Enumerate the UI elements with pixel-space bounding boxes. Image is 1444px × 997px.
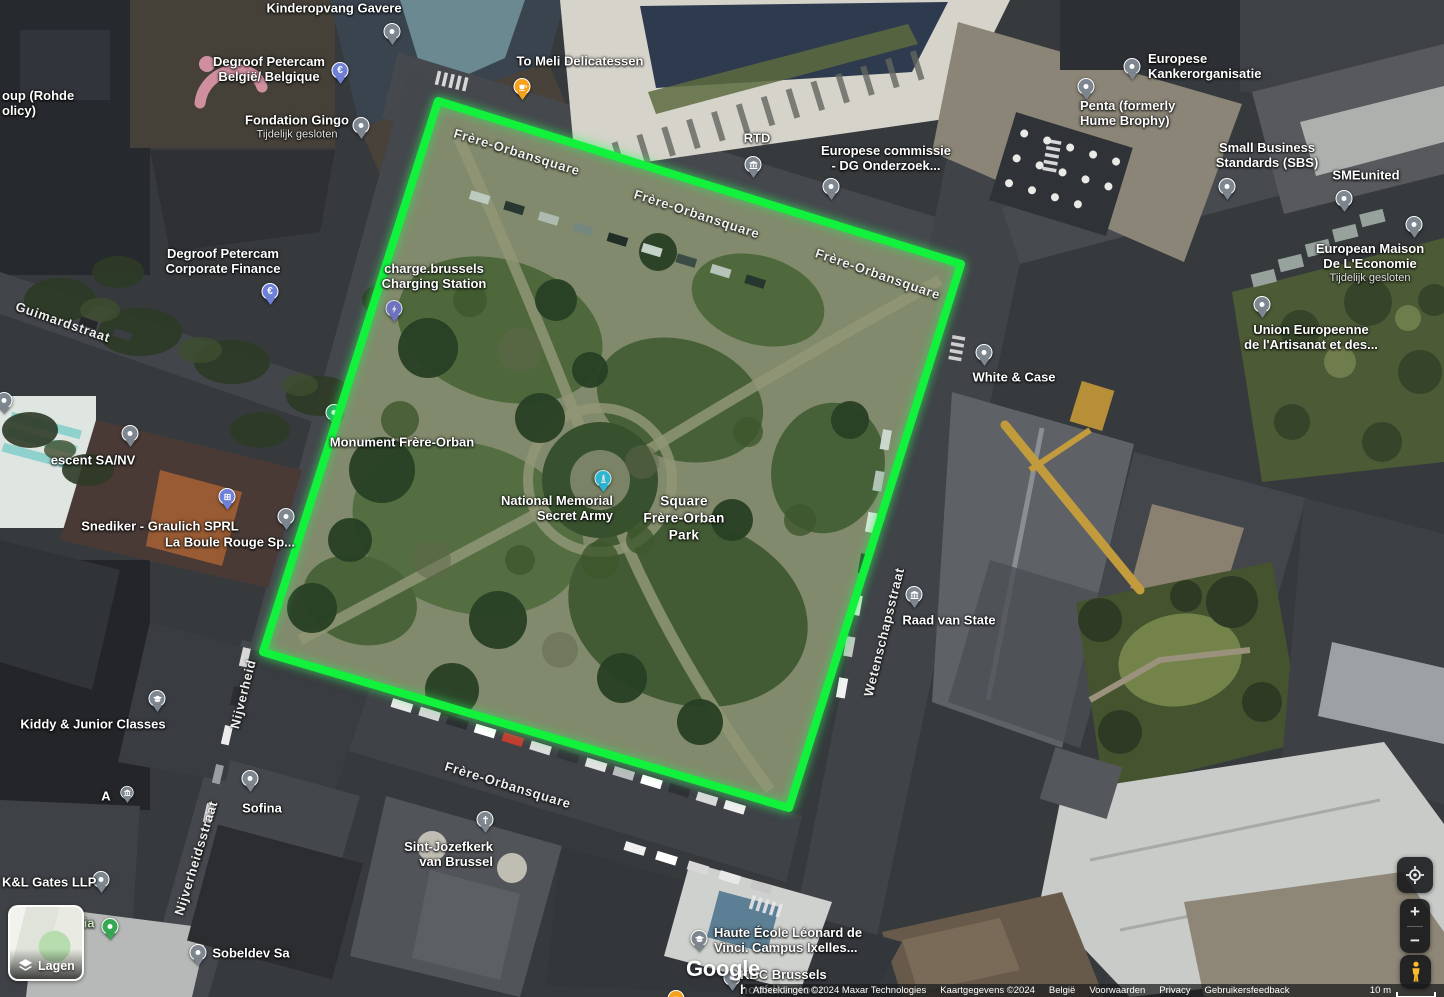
my-location-button[interactable] xyxy=(1397,857,1433,893)
attribution-links: BelgiëVoorwaardenPrivacyGebruikersfeedba… xyxy=(1049,984,1290,997)
national-memorial-secret-army-pin[interactable] xyxy=(595,470,612,492)
charge-brussels-pin[interactable] xyxy=(386,300,403,322)
sofina-pin[interactable] xyxy=(242,770,259,792)
my-location-icon xyxy=(1405,865,1425,885)
pegman-icon xyxy=(1409,961,1423,983)
europese-kankerorganisatie-pin[interactable] xyxy=(1124,58,1141,80)
map-canvas[interactable]: €€ Kinderopvang GavereDegroof PetercamBe… xyxy=(0,0,1444,997)
fondation-gingo-pin[interactable] xyxy=(353,117,370,139)
penta-hume-brophy-pin[interactable] xyxy=(1078,78,1095,100)
european-maison-economie-pin[interactable] xyxy=(1406,216,1423,238)
attribution-link-privacy[interactable]: Privacy xyxy=(1159,984,1190,997)
scale-label: 10 m xyxy=(1370,984,1391,997)
snediker-graulich-pin[interactable] xyxy=(219,488,236,510)
haute-ecole-leonard-pin[interactable] xyxy=(691,930,708,952)
sint-jozefkerk-pin[interactable] xyxy=(477,811,494,833)
orange-pin-partial-pin[interactable] xyxy=(668,990,685,997)
crescent-sa-nv-pin[interactable] xyxy=(122,425,139,447)
kl-gates-llp-pin[interactable] xyxy=(93,871,110,893)
attribution-imagery: Afbeeldingen ©2024 Maxar Technologies xyxy=(753,984,926,997)
layers-label: Lagen xyxy=(38,959,75,973)
sobeldev-sa-pin[interactable] xyxy=(190,944,207,966)
attribution-map-data: Kaartgegevens ©2024 xyxy=(940,984,1035,997)
kinderopvang-gavere-pin[interactable] xyxy=(384,23,401,45)
monument-frere-orban-pin[interactable] xyxy=(326,404,343,426)
attribution-link-belgi-[interactable]: België xyxy=(1049,984,1075,997)
degroof-petercam-corporate-pin[interactable]: € xyxy=(262,283,279,305)
white-and-case-pin[interactable] xyxy=(976,344,993,366)
la-boule-rouge-pin[interactable] xyxy=(278,508,295,530)
attribution-link-gebruikersfeedback[interactable]: Gebruikersfeedback xyxy=(1204,984,1289,997)
scale-bar xyxy=(1396,992,1436,997)
attribution-bar: Afbeeldingen ©2024 Maxar Technologies Ka… xyxy=(745,984,1444,997)
food-icon xyxy=(668,990,685,997)
small-business-standards-pin[interactable] xyxy=(1219,178,1236,200)
edge-pin-left-pin[interactable] xyxy=(0,392,13,414)
raad-van-state-pin[interactable] xyxy=(906,586,923,608)
degroof-petercam-belgie-pin[interactable]: € xyxy=(332,62,349,84)
zoom-control: + − xyxy=(1400,899,1430,953)
zoom-in-button[interactable]: + xyxy=(1400,903,1430,920)
layers-button[interactable]: Lagen xyxy=(8,905,84,981)
to-meli-delicatessen-pin[interactable] xyxy=(514,78,531,100)
zoom-out-button[interactable]: − xyxy=(1400,932,1430,949)
scale-control: 10 m xyxy=(1370,984,1436,997)
europese-commissie-pin[interactable] xyxy=(823,178,840,200)
layers-icon xyxy=(18,958,33,973)
zoom-divider xyxy=(1407,926,1423,927)
smeunited-pin[interactable] xyxy=(1336,190,1353,212)
kiddy-junior-classes-pin[interactable] xyxy=(149,690,166,712)
union-europeenne-artisanat-pin[interactable] xyxy=(1254,296,1271,318)
gov-a-pin[interactable] xyxy=(120,786,133,803)
google-logo[interactable]: Google xyxy=(686,956,760,982)
green-ia-pin[interactable] xyxy=(102,918,119,940)
markers-layer: €€ xyxy=(0,0,1444,997)
rtd-pin[interactable] xyxy=(745,156,762,178)
attribution-link-voorwaarden[interactable]: Voorwaarden xyxy=(1089,984,1145,997)
